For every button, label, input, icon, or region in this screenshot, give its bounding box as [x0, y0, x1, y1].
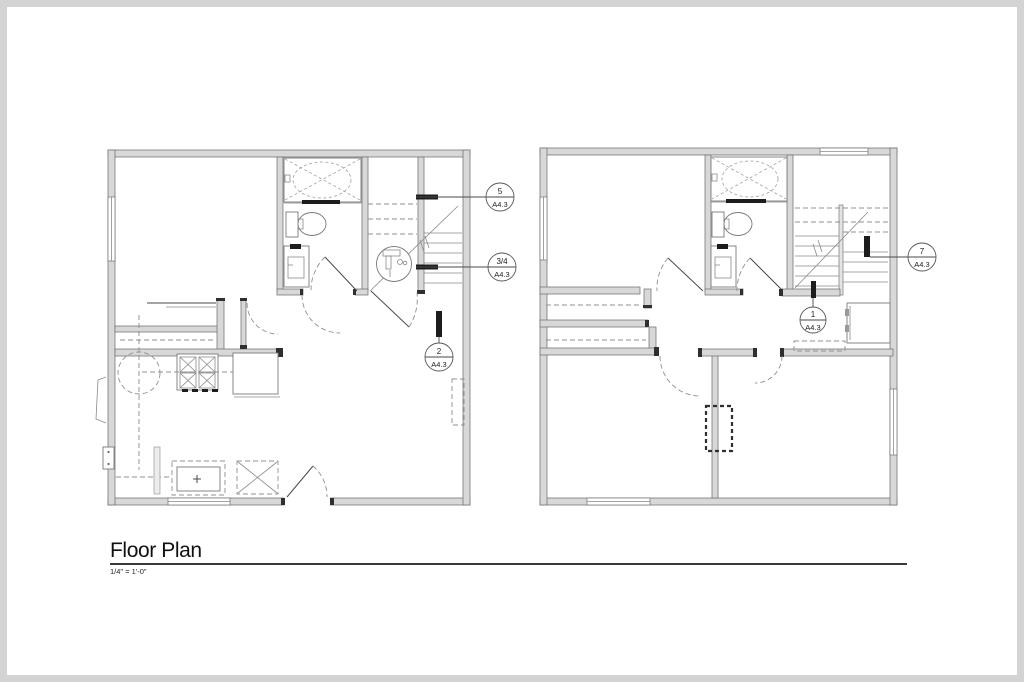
water-heater [377, 247, 412, 282]
electric-meter [96, 377, 106, 423]
kitchen [115, 295, 340, 495]
stair-hall-door [371, 291, 417, 327]
window [540, 197, 547, 260]
refrigerator [233, 353, 280, 397]
bedroom-door [657, 258, 703, 291]
drawing-scale: 1/4" = 1'-0" [110, 567, 147, 576]
callout-sheet: A4.3 [492, 200, 507, 209]
bathtub [711, 157, 787, 203]
window [168, 498, 230, 505]
drawing-title: Floor Plan [110, 539, 202, 563]
section-mark [436, 311, 442, 337]
section-mark [864, 236, 870, 257]
chase [706, 406, 732, 451]
floor-plan-drawing: 5 A4.3 3/4 A4.3 2 A4.3 7 A4.3 1 A4.3 [0, 0, 1024, 682]
section-mark [811, 281, 816, 298]
range [177, 354, 218, 392]
bathroom [277, 157, 368, 295]
stairs [368, 157, 462, 327]
floor-plan-sheet: 5 A4.3 3/4 A4.3 2 A4.3 7 A4.3 1 A4.3 Flo… [0, 0, 1024, 682]
callout-1: 1 A4.3 [800, 307, 826, 333]
furniture [845, 303, 890, 343]
callout-sheet: A4.3 [914, 260, 929, 269]
callout-2: 2 A4.3 [425, 343, 453, 371]
bathroom [705, 155, 793, 295]
entry-door [281, 466, 334, 506]
bathtub [284, 158, 362, 204]
callout-sheet: A4.3 [494, 270, 509, 279]
closets [540, 287, 659, 356]
chase [452, 379, 464, 425]
bathroom-door [311, 257, 357, 291]
sink-vanity [284, 244, 309, 287]
title-underline [110, 563, 907, 565]
electric-panel [103, 447, 114, 469]
callout-sheet: A4.3 [805, 323, 820, 332]
dishwasher [237, 461, 278, 494]
callout-number: 7 [920, 247, 925, 256]
stairs [779, 205, 888, 296]
toilet [712, 212, 752, 237]
window [587, 498, 650, 505]
toilet [286, 212, 326, 237]
callout-sheet: A4.3 [431, 360, 446, 369]
bedroom-walls [660, 341, 893, 498]
callout-number: 1 [811, 310, 816, 319]
callout-number: 3/4 [496, 257, 508, 266]
callout-number: 2 [437, 347, 442, 356]
callout-7: 7 A4.3 [870, 243, 936, 271]
first-floor-plan [96, 150, 470, 506]
window [890, 389, 897, 455]
second-floor-plan [540, 148, 897, 505]
bathroom-door [737, 258, 783, 291]
sink-vanity [711, 244, 736, 287]
window [820, 148, 868, 155]
window [108, 197, 115, 261]
callout-number: 5 [498, 187, 503, 196]
kitchen-sink [172, 461, 225, 495]
